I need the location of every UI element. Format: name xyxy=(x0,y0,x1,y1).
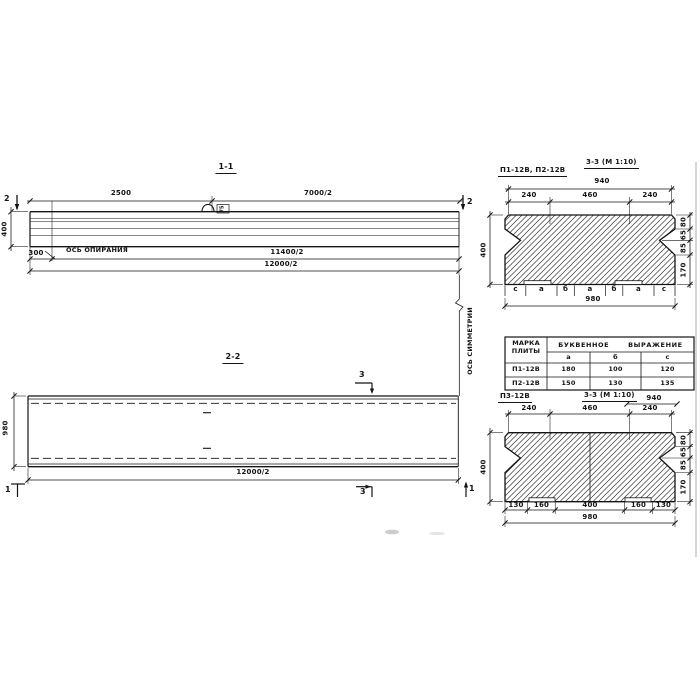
table-header-plity: ПЛИТЫ xyxy=(512,348,540,355)
dim-240-a: 240 xyxy=(521,192,536,199)
dim-right-80-b: 80 xyxy=(681,434,688,444)
section-mark-1-left: 1 xyxy=(5,486,11,494)
loop-tag: 75 xyxy=(221,205,226,212)
dim-12000-2: 12000/2 xyxy=(264,261,297,268)
cross-section-hatched xyxy=(505,215,675,285)
dim-300: 300 xyxy=(28,250,43,257)
dim-right-85-b: 85 xyxy=(681,460,688,470)
table-row2-mark: П2-12В xyxy=(512,380,540,387)
letter-a3: а xyxy=(636,286,641,293)
dim-2500: 2500 xyxy=(111,190,131,197)
section-2-2-title: 2-2 xyxy=(222,353,243,364)
section-mark-1-right: 1 xyxy=(469,485,475,493)
dim-right-80-a: 80 xyxy=(681,217,688,227)
section-2-2-linework xyxy=(11,383,468,497)
letter-c2: с xyxy=(662,286,666,293)
dim-right-85-a: 85 xyxy=(681,242,688,252)
symmetry-axis-line xyxy=(456,275,464,396)
dim-400-a: 400 xyxy=(480,242,487,257)
letter-a2: а xyxy=(588,286,593,293)
drawing-sheet: 1-1 2500 7000/2 2 2 400 75 300 ОСЬ ОПИРА… xyxy=(0,0,700,700)
dim-130-a: 130 xyxy=(508,502,523,509)
table-row2-a: 150 xyxy=(561,380,575,387)
section-mark-3-bottom: 3 xyxy=(360,488,366,496)
plate-label-p3: П3-12В xyxy=(498,393,532,403)
section-1-1-linework xyxy=(8,195,465,275)
plates-label-p1-p2: П1-12В, П2-12В xyxy=(498,167,567,177)
dim-160-b: 160 xyxy=(631,502,646,509)
symmetry-axis-label: ОСЬ СИММЕТРИИ xyxy=(467,307,474,375)
drawing-canvas xyxy=(0,0,700,700)
table-row1-c: 120 xyxy=(660,366,674,373)
table-row1-b: 100 xyxy=(608,366,622,373)
dim-240-c: 240 xyxy=(521,405,536,412)
dim-right-65-a: 65 xyxy=(681,229,688,239)
dim-130-b: 130 xyxy=(656,502,671,509)
section-1-1-title: 1-1 xyxy=(215,163,236,174)
dim-right-65-b: 65 xyxy=(681,447,688,457)
letter-a1: а xyxy=(539,286,544,293)
table-col-c: с xyxy=(665,354,669,361)
dim-240-d: 240 xyxy=(642,405,657,412)
section-3-3-title-top: 3-3 (М 1:10) xyxy=(584,159,639,169)
dim-height-400: 400 xyxy=(1,221,8,236)
table-row2-c: 135 xyxy=(660,380,674,387)
dim-12000-2-plan: 12000/2 xyxy=(236,469,269,476)
letter-b2: б xyxy=(611,286,616,293)
table-row2-b: 130 xyxy=(608,380,622,387)
section-mark-2-left: 2 xyxy=(4,195,10,203)
table-row1-a: 180 xyxy=(561,366,575,373)
dim-400-b: 400 xyxy=(480,459,487,474)
dim-160-a: 160 xyxy=(534,502,549,509)
dim-right-170-b: 170 xyxy=(681,479,688,494)
dim-940-bottom: 940 xyxy=(646,395,661,402)
dim-980-left: 980 xyxy=(2,420,9,435)
scan-smudge xyxy=(385,530,445,536)
dim-7000-2: 7000/2 xyxy=(304,190,332,197)
letter-c1: с xyxy=(513,286,517,293)
dim-right-170-a: 170 xyxy=(681,262,688,277)
dim-980-a: 980 xyxy=(585,296,600,303)
section-mark-2-right: 2 xyxy=(467,198,473,206)
dim-11400-2: 11400/2 xyxy=(270,249,303,256)
dim-980-b: 980 xyxy=(582,514,597,521)
dim-460-a: 460 xyxy=(582,192,597,199)
dim-400-bottom: 400 xyxy=(582,502,597,509)
support-axis-label: ОСЬ ОПИРАНИЯ xyxy=(66,247,128,254)
section-3-3-title-bottom: 3-3 (М 1:10) xyxy=(582,392,637,402)
dim-460-b: 460 xyxy=(582,405,597,412)
table-header-expression: БУКВЕННОЕ ВЫРАЖЕНИЕ xyxy=(558,342,682,349)
section-mark-3-top: 3 xyxy=(359,371,365,379)
dim-240-b: 240 xyxy=(642,192,657,199)
letter-b1: б xyxy=(563,286,568,293)
table-col-a: а xyxy=(566,354,571,361)
table-header-marka: МАРКА xyxy=(512,340,540,347)
table-row1-mark: П1-12В xyxy=(512,366,540,373)
dim-940-top: 940 xyxy=(594,178,609,185)
table-col-b: б xyxy=(613,354,618,361)
